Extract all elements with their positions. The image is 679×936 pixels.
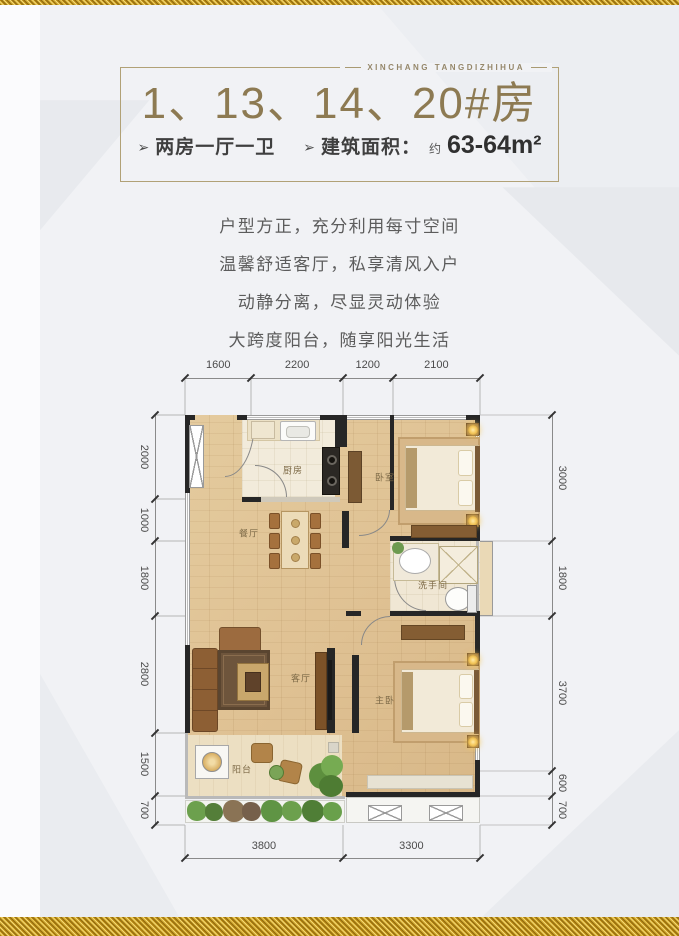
area-approx: 约 (429, 140, 441, 157)
arrowhead-icon: ➢ (137, 139, 149, 156)
wall (346, 792, 480, 797)
dimension-value: 2100 (424, 359, 448, 371)
dimension-segment: 1800 (137, 541, 185, 616)
bathroom-sink (399, 548, 431, 574)
dimension-segment: 3000 (480, 415, 568, 541)
selling-point: 户型方正，充分利用每寸空间 (0, 208, 679, 246)
bathroom-window-bay (480, 541, 493, 616)
garden-bush (323, 802, 342, 821)
balcony-chair (251, 743, 273, 763)
dimension-value: 1800 (556, 566, 568, 590)
dimension-tick (155, 498, 185, 499)
toilet-tank (467, 585, 477, 613)
dimension-tick (185, 825, 186, 858)
coffee-table (237, 663, 269, 701)
dining-chair (269, 553, 280, 569)
room-label-kitchen: 厨房 (283, 464, 303, 477)
master-bed (401, 669, 479, 733)
dimension-tick (155, 732, 185, 733)
lamp-glow (468, 425, 478, 435)
dresser (411, 525, 477, 538)
dimension-tick (392, 378, 393, 415)
selling-point: 大跨度阳台，随享阳光生活 (0, 322, 679, 360)
room-label-balcony: 阳台 (232, 763, 252, 776)
stove (322, 447, 340, 495)
window (185, 493, 190, 645)
dimension-segment: 2800 (137, 616, 185, 733)
dimension-value: 3300 (399, 840, 423, 852)
low-wall (261, 497, 340, 502)
selling-points: 户型方正，充分利用每寸空间 温馨舒适客厅，私享清风入户 动静分离，尽显灵动体验 … (0, 208, 679, 360)
dimension-segment: 1000 (137, 499, 185, 541)
garden-bush (261, 800, 283, 822)
floorplan-poster: XINCHANG TANGDIZHIHUA 1、13、14、20#房 ➢ 两房一… (0, 0, 679, 936)
room-label-bathroom: 洗手间 (418, 579, 448, 592)
wall (342, 511, 349, 548)
dimension-value: 2200 (285, 359, 309, 371)
dimension-tick (155, 615, 185, 616)
kitchen-sink (280, 421, 316, 441)
dimension-segment: 1500 (137, 733, 185, 796)
area-label: 建筑面积： (321, 132, 421, 159)
garden-bush (242, 802, 261, 821)
dimension-tick (155, 415, 185, 416)
dimension-tick (480, 415, 552, 416)
washing-machine (195, 745, 229, 779)
dimension-value: 1200 (356, 359, 380, 371)
dimension-segment: 3300 (343, 820, 480, 865)
fridge (348, 451, 362, 503)
brand-line: XINCHANG TANGDIZHIHUA (340, 63, 552, 72)
gold-glitter-bottom-border (0, 917, 679, 936)
unit-title: 1、13、14、20#房 (121, 80, 558, 128)
dimension-value: 3000 (556, 466, 568, 490)
dining-table (281, 511, 309, 569)
garden-bush (282, 801, 302, 821)
balcony-plant-pot (269, 765, 284, 780)
dimension-value: 1600 (206, 359, 230, 371)
floor-drain (328, 742, 339, 753)
dimension-tick (155, 795, 185, 796)
dimension-segment: 3700 (480, 616, 568, 771)
balcony-plant (309, 755, 343, 797)
tv (328, 660, 332, 720)
dimension-tick (342, 378, 343, 415)
title-frame: XINCHANG TANGDIZHIHUA 1、13、14、20#房 ➢ 两房一… (120, 67, 559, 182)
dimension-value: 3700 (556, 681, 568, 705)
wall (237, 415, 247, 420)
area-value: 63-64m² (447, 131, 542, 160)
dimension-tick (480, 378, 481, 415)
window-seat (367, 775, 473, 789)
dimension-value: 700 (138, 801, 150, 819)
balcony-rail (185, 733, 188, 797)
brand-rule-right (531, 67, 547, 68)
dimension-tick (342, 825, 343, 858)
lamp-glow (468, 655, 478, 665)
dimension-value: 1800 (138, 566, 150, 590)
dimension-tick (480, 825, 552, 826)
garden-bush (302, 800, 324, 822)
dining-chair (310, 533, 321, 549)
dimension-value: 1000 (138, 507, 150, 531)
dining-chair (269, 533, 280, 549)
dimension-tick (155, 540, 185, 541)
dimension-segment: 1200 (343, 356, 393, 415)
floorplan: 厨房 卧室 餐厅 洗手间 客厅 主卧 阳台 (185, 415, 480, 825)
garden-bush (205, 803, 223, 821)
dimension-value: 3800 (252, 840, 276, 852)
dimension-tick (185, 378, 186, 415)
wall (352, 655, 359, 733)
dimension-segment: 3800 (185, 820, 343, 865)
dimension-tick (480, 770, 552, 771)
dimension-bar-right: 300018003700600700 (480, 415, 568, 825)
left-white-strip (0, 0, 40, 936)
dimension-tick (155, 825, 185, 826)
dimension-tick (251, 378, 252, 415)
dimension-segment: 2000 (137, 415, 185, 499)
layout-tag-text: 两房一厅一卫 (155, 132, 275, 159)
dimension-bar-left: 20001000180028001500700 (137, 415, 185, 825)
shaft-hatch (189, 425, 204, 488)
room-label-master-bedroom: 主卧 (375, 694, 395, 707)
dimension-tick (480, 795, 552, 796)
tv-console (315, 652, 327, 730)
brand-rule-left (345, 67, 361, 68)
sofa (192, 648, 218, 732)
room-label-living: 客厅 (291, 672, 311, 685)
gold-glitter-top-border (0, 0, 679, 5)
layout-tag: ➢ 两房一厅一卫 (137, 132, 275, 159)
dimension-value: 1500 (138, 752, 150, 776)
dining-chair (269, 513, 280, 529)
master-dresser (401, 625, 465, 640)
room-label-dining: 餐厅 (239, 527, 259, 540)
dimension-value: 700 (556, 801, 568, 819)
area-tag: ➢ 建筑面积： 约 63-64m² (303, 131, 541, 160)
ac-unit (429, 805, 463, 821)
ac-unit (368, 805, 402, 821)
dimension-value: 2800 (138, 662, 150, 686)
lamp-glow (468, 737, 478, 747)
kitchen-cabinet (251, 421, 275, 439)
wall (242, 497, 261, 502)
dimension-bar-bottom: 38003300 (185, 820, 480, 865)
bed (405, 445, 479, 511)
garden-bush (187, 801, 207, 821)
dimension-segment: 700 (137, 796, 185, 825)
window (247, 415, 320, 420)
dimension-tick (480, 825, 481, 858)
dimension-bar-top: 1600220012002100 (185, 356, 480, 415)
brand-text: XINCHANG TANGDIZHIHUA (367, 63, 525, 72)
wall (335, 415, 347, 447)
room-label-bedroom: 卧室 (375, 471, 395, 484)
window (347, 415, 466, 420)
unit-tags: ➢ 两房一厅一卫 ➢ 建筑面积： 约 63-64m² (121, 131, 558, 160)
selling-point: 温馨舒适客厅，私享清风入户 (0, 246, 679, 284)
dimension-value: 2000 (138, 445, 150, 469)
arrowhead-icon: ➢ (303, 139, 315, 156)
wall (390, 415, 394, 510)
wall (185, 645, 190, 733)
dimension-segment: 2100 (393, 356, 480, 415)
dimension-segment: 2200 (251, 356, 342, 415)
dimension-value: 600 (556, 774, 568, 792)
selling-point: 动静分离，尽显灵动体验 (0, 284, 679, 322)
dining-chair (310, 553, 321, 569)
dining-chair (310, 513, 321, 529)
dimension-segment: 1600 (185, 356, 251, 415)
dimension-segment: 1800 (480, 541, 568, 616)
wall (346, 611, 361, 616)
